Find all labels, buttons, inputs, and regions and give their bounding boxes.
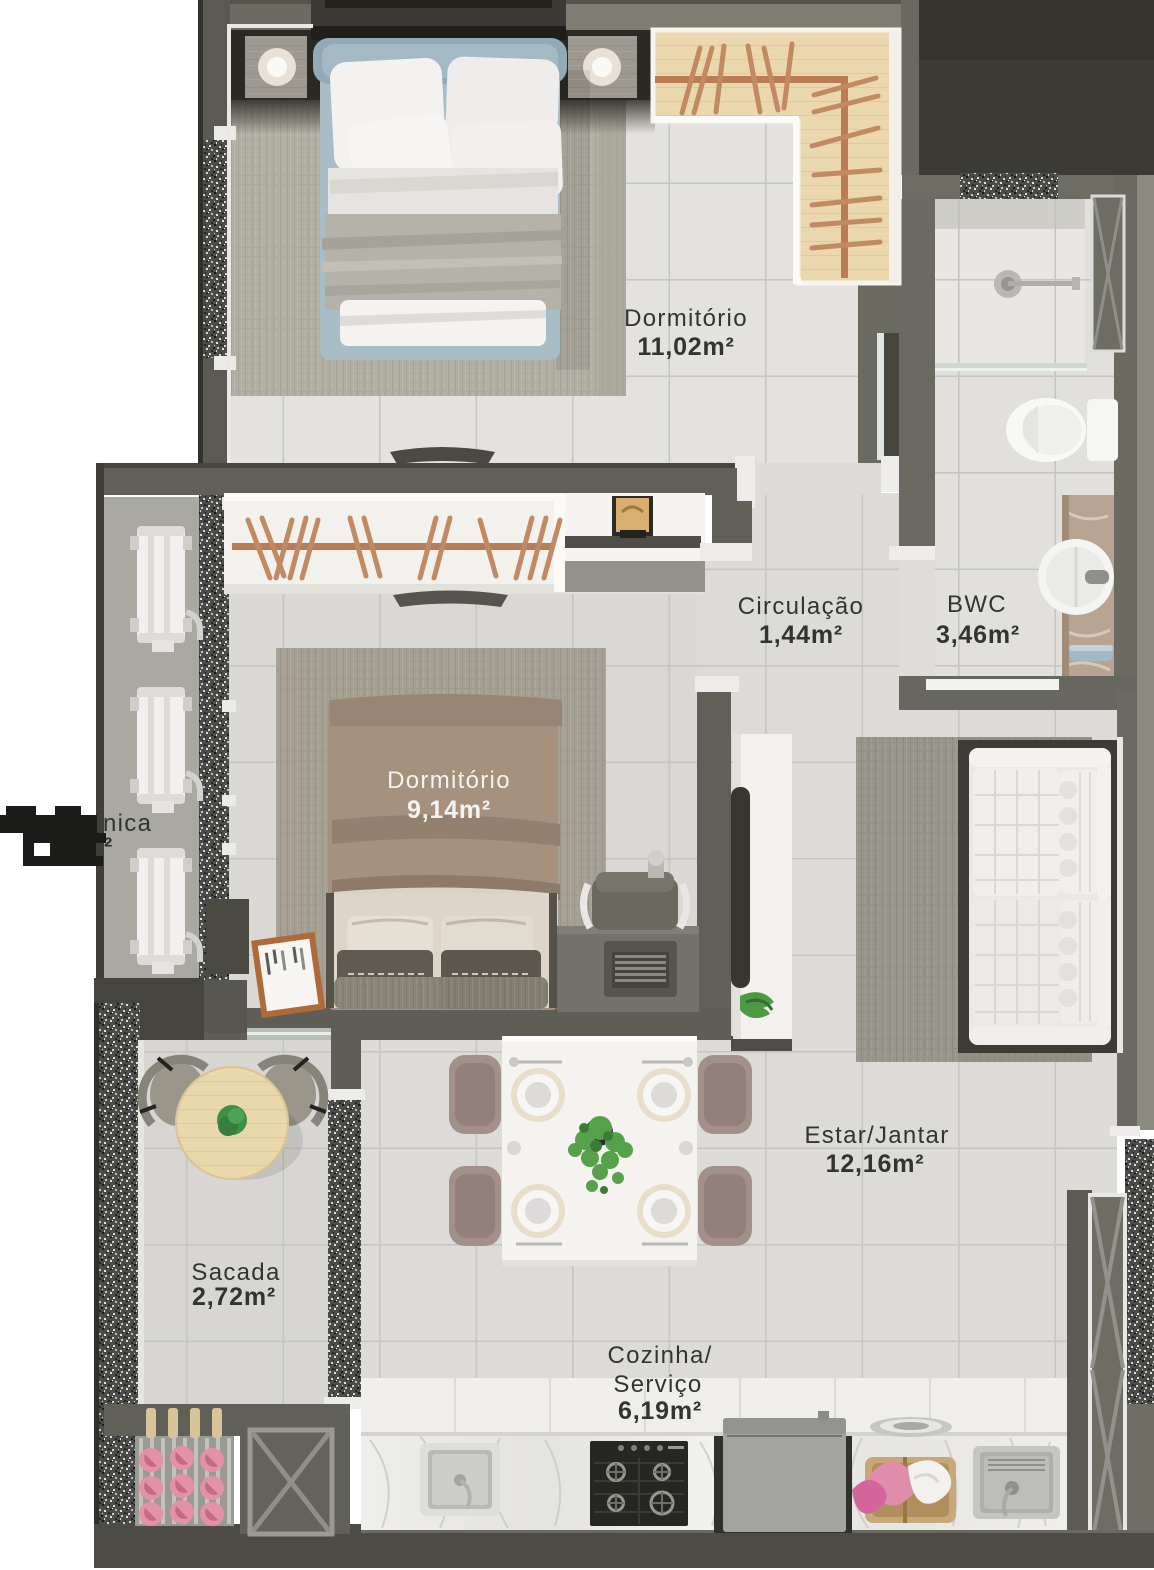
svg-text:12,16m²: 12,16m² bbox=[826, 1150, 925, 1178]
svg-text:Estar/Jantar: Estar/Jantar bbox=[805, 1122, 950, 1149]
svg-text:BWC: BWC bbox=[947, 591, 1007, 618]
svg-text:Sacada: Sacada bbox=[191, 1259, 280, 1286]
svg-text:9,14m²: 9,14m² bbox=[407, 796, 491, 824]
svg-text:1,44m²: 1,44m² bbox=[759, 621, 843, 649]
svg-text:6,19m²: 6,19m² bbox=[618, 1397, 702, 1425]
svg-text:2,72m²: 2,72m² bbox=[192, 1283, 276, 1311]
svg-text:Serviço: Serviço bbox=[613, 1371, 702, 1398]
svg-text:Dormitório: Dormitório bbox=[624, 305, 748, 332]
svg-text:11,02m²: 11,02m² bbox=[637, 333, 734, 361]
svg-text:Dormitório: Dormitório bbox=[387, 767, 511, 794]
svg-text:Cozinha/: Cozinha/ bbox=[607, 1342, 712, 1369]
svg-text:Circulação: Circulação bbox=[738, 593, 864, 620]
svg-text:3,46m²: 3,46m² bbox=[936, 621, 1020, 649]
